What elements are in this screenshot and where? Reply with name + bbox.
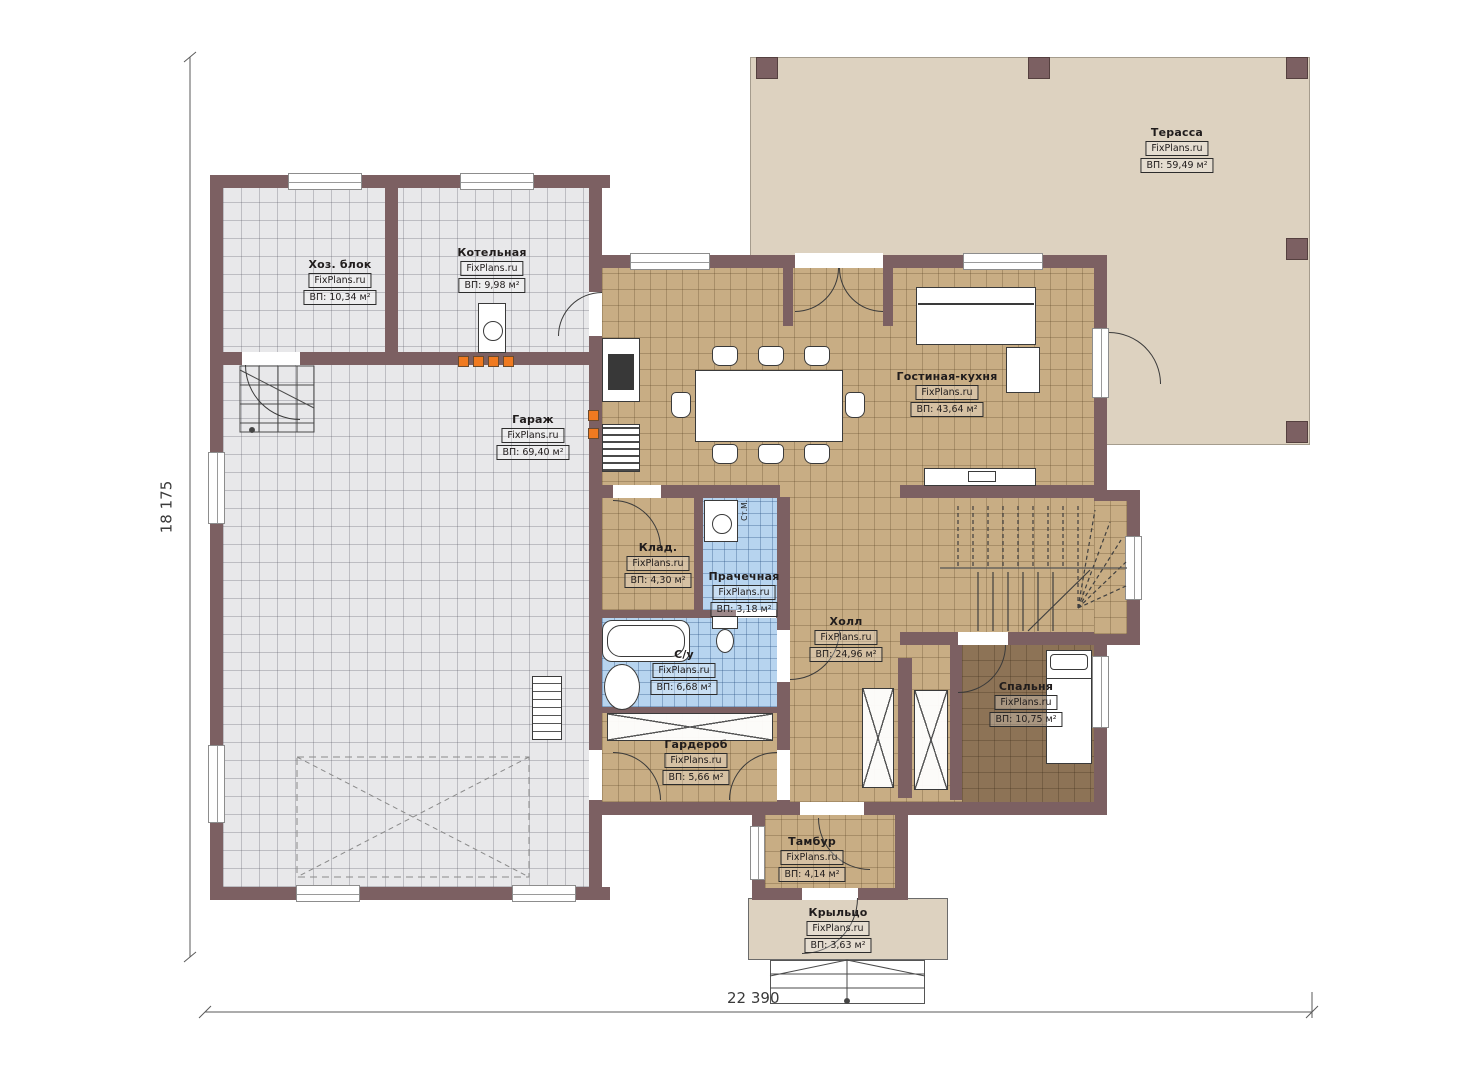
flue-marker <box>588 428 599 439</box>
garage-shelf <box>532 676 562 740</box>
flue-marker <box>588 410 599 421</box>
bed-pillow <box>1050 654 1088 670</box>
room-label-wardrobe: Гардероб FixPlans.ru ВП: 5,66 м² <box>662 738 729 785</box>
room-name: Холл <box>809 615 882 628</box>
tv-stand-detail <box>968 471 996 482</box>
toilet-bowl <box>716 629 734 653</box>
chair <box>804 346 830 366</box>
flue-marker <box>458 356 469 367</box>
window <box>630 253 710 270</box>
terrace-column <box>1286 238 1308 260</box>
area-box: ВП: 4,14 м² <box>778 867 845 882</box>
brand-box: FixPlans.ru <box>994 695 1057 710</box>
door-opening <box>800 802 864 815</box>
terrace-door-opening <box>795 253 883 268</box>
dimension-height-label: 18 175 <box>157 481 175 534</box>
window <box>208 745 225 823</box>
room-label-bathroom: С/у FixPlans.ru ВП: 6,68 м² <box>650 648 717 695</box>
terrace-column <box>1286 57 1308 79</box>
window <box>963 253 1043 270</box>
room-label-hozblok: Хоз. блок FixPlans.ru ВП: 10,34 м² <box>303 258 376 305</box>
wall-segment <box>385 175 398 365</box>
room-name: Котельная <box>457 246 526 259</box>
washing-machine-label: Ст.М. <box>740 500 749 521</box>
chair <box>758 444 784 464</box>
wall-segment <box>1008 632 1094 645</box>
wall-segment <box>900 485 1094 498</box>
sofa <box>916 287 1036 345</box>
brand-box: FixPlans.ru <box>806 921 869 936</box>
room-label-porch: Крыльцо FixPlans.ru ВП: 3,63 м² <box>804 906 871 953</box>
area-box: ВП: 3,18 м² <box>710 602 777 617</box>
window <box>750 826 765 880</box>
dining-table <box>695 370 843 442</box>
room-name: С/у <box>650 648 717 661</box>
area-box: ВП: 9,98 м² <box>458 278 525 293</box>
stove <box>602 424 640 472</box>
brand-box: FixPlans.ru <box>652 663 715 678</box>
room-name: Прачечная <box>709 570 780 583</box>
room-name: Хоз. блок <box>303 258 376 271</box>
room-name: Гардероб <box>662 738 729 751</box>
wall-segment <box>883 268 893 326</box>
chair <box>845 392 865 418</box>
floor-stair-bay <box>1094 501 1127 634</box>
window <box>1092 656 1109 728</box>
terrace-column <box>756 57 778 79</box>
hall-wardrobe <box>862 688 894 788</box>
terrace-column <box>1286 421 1308 443</box>
wall-segment <box>898 658 912 798</box>
brand-box: FixPlans.ru <box>664 753 727 768</box>
room-label-living-kitchen: Гостиная-кухня FixPlans.ru ВП: 43,64 м² <box>896 370 997 417</box>
room-name: Крыльцо <box>804 906 871 919</box>
brand-box: FixPlans.ru <box>780 850 843 865</box>
brand-box: FixPlans.ru <box>814 630 877 645</box>
built-in-wardrobe <box>607 713 773 741</box>
side-table <box>1006 347 1040 393</box>
window <box>288 173 362 190</box>
kitchen-sink <box>608 354 634 390</box>
room-name: Гараж <box>496 413 569 426</box>
room-label-hall: Холл FixPlans.ru ВП: 24,96 м² <box>809 615 882 662</box>
brand-box: FixPlans.ru <box>1145 141 1208 156</box>
hall-wardrobe <box>914 690 948 790</box>
brand-box: FixPlans.ru <box>308 273 371 288</box>
room-name: Гостиная-кухня <box>896 370 997 383</box>
room-label-terrace: Терасса FixPlans.ru ВП: 59,49 м² <box>1140 126 1213 173</box>
wall-segment <box>900 632 958 645</box>
chair <box>804 444 830 464</box>
area-box: ВП: 59,49 м² <box>1140 158 1213 173</box>
door-opening <box>777 750 790 800</box>
area-box: ВП: 5,66 м² <box>662 770 729 785</box>
floor-garage-block <box>223 188 589 887</box>
area-box: ВП: 6,68 м² <box>650 680 717 695</box>
area-box: ВП: 10,34 м² <box>303 290 376 305</box>
wall-segment <box>783 268 793 326</box>
room-label-bedroom: Спальня FixPlans.ru ВП: 10,75 м² <box>989 680 1062 727</box>
terrace-side-door <box>1092 328 1109 398</box>
flue-marker <box>503 356 514 367</box>
brand-box: FixPlans.ru <box>712 585 775 600</box>
room-label-tambur: Тамбур FixPlans.ru ВП: 4,14 м² <box>778 835 845 882</box>
area-box: ВП: 4,30 м² <box>624 573 691 588</box>
brand-box: FixPlans.ru <box>460 261 523 276</box>
area-box: ВП: 10,75 м² <box>989 712 1062 727</box>
door-opening <box>958 632 1008 645</box>
boiler-unit <box>478 303 506 353</box>
wall-segment <box>661 485 780 498</box>
bathroom-sink <box>604 664 640 710</box>
chair <box>671 392 691 418</box>
door-opening <box>242 352 300 365</box>
area-box: ВП: 3,63 м² <box>804 938 871 953</box>
room-label-laundry: Прачечная FixPlans.ru ВП: 3,18 м² <box>709 570 780 617</box>
flue-marker <box>473 356 484 367</box>
porch-steps <box>770 960 925 1004</box>
window <box>208 452 225 524</box>
flue-marker <box>488 356 499 367</box>
area-box: ВП: 43,64 м² <box>910 402 983 417</box>
room-label-garage: Гараж FixPlans.ru ВП: 69,40 м² <box>496 413 569 460</box>
room-label-storage: Клад. FixPlans.ru ВП: 4,30 м² <box>624 541 691 588</box>
room-label-boiler: Котельная FixPlans.ru ВП: 9,98 м² <box>457 246 526 293</box>
room-name: Клад. <box>624 541 691 554</box>
toilet-tank <box>712 616 738 629</box>
wall-segment <box>858 888 908 900</box>
sofa-back-line <box>918 303 1034 305</box>
wall-segment <box>752 888 802 900</box>
door-opening <box>589 750 602 800</box>
garage-door <box>296 885 360 902</box>
garage-door <box>512 885 576 902</box>
dimension-width-label: 22 390 <box>727 989 780 1007</box>
room-name: Спальня <box>989 680 1062 693</box>
room-name: Тамбур <box>778 835 845 848</box>
door-opening <box>777 630 790 682</box>
brand-box: FixPlans.ru <box>626 556 689 571</box>
wall-segment <box>210 175 610 188</box>
area-box: ВП: 69,40 м² <box>496 445 569 460</box>
brand-box: FixPlans.ru <box>501 428 564 443</box>
brand-box: FixPlans.ru <box>915 385 978 400</box>
terrace-column <box>1028 57 1050 79</box>
window <box>1125 536 1142 600</box>
window <box>460 173 534 190</box>
chair <box>758 346 784 366</box>
chair <box>712 444 738 464</box>
area-box: ВП: 24,96 м² <box>809 647 882 662</box>
room-name: Терасса <box>1140 126 1213 139</box>
chair <box>712 346 738 366</box>
wall-segment <box>589 485 613 498</box>
wall-segment <box>694 497 703 610</box>
washing-machine <box>704 500 738 542</box>
floor-plan-canvas: Ст.М. Терасса FixPlans.ru ВП: 59,49 м² Х… <box>0 0 1473 1080</box>
door-opening <box>613 485 661 498</box>
